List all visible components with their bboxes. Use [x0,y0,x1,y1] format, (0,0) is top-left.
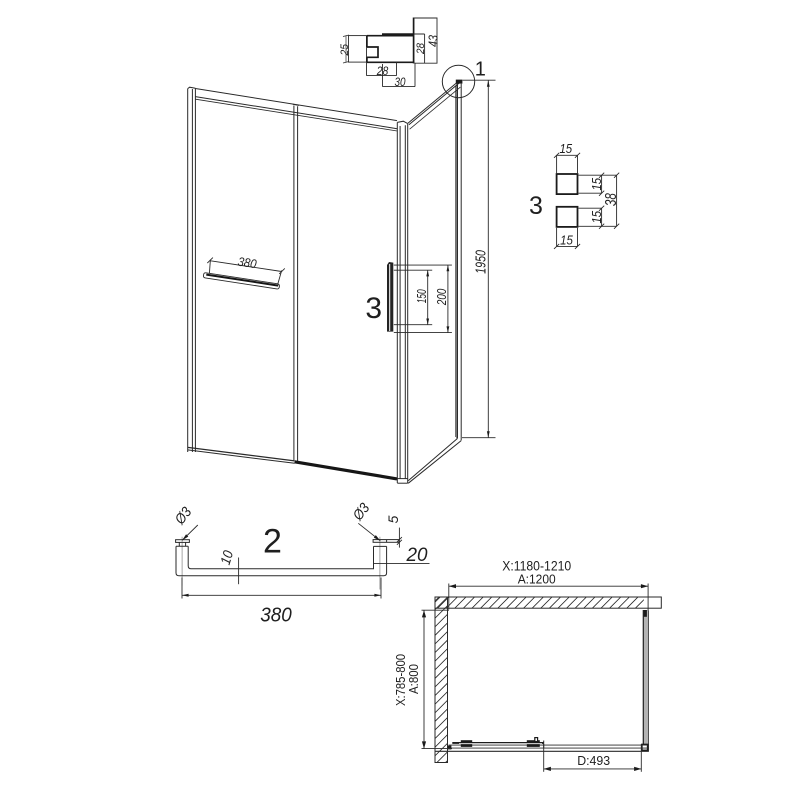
svg-text:10: 10 [217,548,236,566]
svg-text:15: 15 [559,141,572,156]
svg-text:28: 28 [415,42,427,55]
svg-text:5: 5 [385,515,401,523]
svg-text:380: 380 [260,605,292,627]
svg-text:43: 43 [427,35,441,47]
svg-text:20: 20 [406,545,428,566]
svg-text:1: 1 [475,58,486,80]
svg-text:38: 38 [603,193,620,206]
svg-text:X:785-800: X:785-800 [394,654,408,706]
svg-text:D:493: D:493 [577,753,610,768]
svg-text:380: 380 [237,255,258,272]
svg-text:30: 30 [395,75,406,89]
svg-text:200: 200 [434,288,449,306]
svg-text:15: 15 [589,210,604,223]
svg-text:25: 25 [339,43,351,56]
svg-text:A:1200: A:1200 [518,572,556,587]
svg-text:Ø3: Ø3 [350,500,374,524]
svg-text:3: 3 [365,292,382,325]
svg-text:150: 150 [414,289,429,303]
svg-text:3: 3 [529,192,543,220]
svg-text:2: 2 [263,523,282,561]
svg-text:A:800: A:800 [407,664,421,694]
svg-text:Ø3: Ø3 [172,504,196,528]
svg-text:15: 15 [589,177,604,190]
svg-text:15: 15 [560,233,573,248]
svg-text:1950: 1950 [474,250,490,274]
